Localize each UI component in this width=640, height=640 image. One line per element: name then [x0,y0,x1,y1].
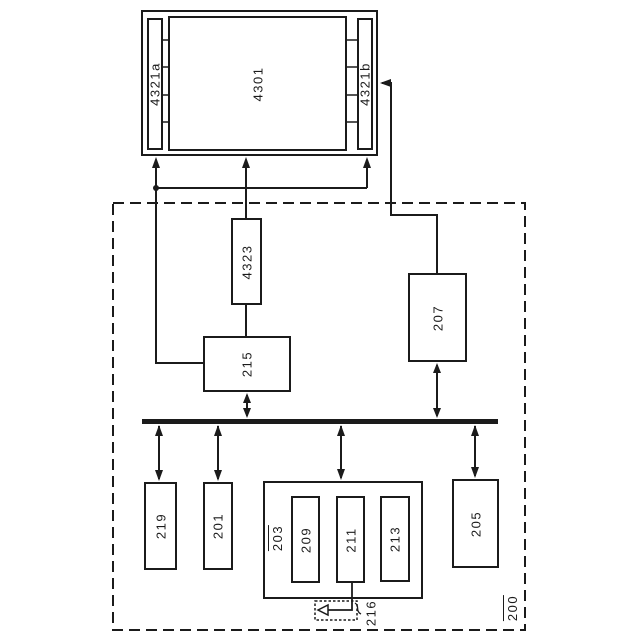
arrow-down-into-203 [337,469,345,480]
arrow-up-into-4301 [242,157,250,168]
label-209: 209 [299,526,312,552]
label-211: 211 [344,527,357,552]
label-4323: 4323 [240,244,253,279]
label-207: 207 [431,304,444,330]
block-215: 215 [203,336,291,392]
arrow-up-into-215 [243,393,251,403]
leader-squiggle [355,603,361,614]
label-201: 201 [212,513,225,539]
arrow-up-onto-bus-219 [155,425,163,436]
block-4321b-right-driver: 4321b [357,18,373,150]
label-203: 203 [268,525,284,551]
arrow-up-into-4321b [363,157,371,168]
block-4323: 4323 [231,218,262,305]
arrow-up-into-207 [433,363,441,373]
block-205: 205 [452,479,499,568]
arrow-up-into-4321a [152,157,160,168]
block-4301-display-panel: 4301 [168,16,347,151]
block-209: 209 [291,496,320,583]
arrow-down-into-201 [214,470,222,481]
block-207: 207 [408,273,467,362]
block-219: 219 [144,482,177,570]
label-205: 205 [469,510,482,536]
block-211: 211 [336,496,365,583]
label-200: 200 [503,595,519,621]
label-219: 219 [154,513,167,539]
arrow-up-onto-bus-203 [337,425,345,436]
wire-junction-dot [153,185,159,191]
block-4321a-left-driver: 4321a [147,18,163,150]
system-bus [142,419,498,424]
arrow-down-into-219 [155,470,163,481]
block-213: 213 [380,496,410,582]
figure-canvas: 4301 4321a 4321b 4323 215 207 219 201 20… [0,0,640,640]
arrow-up-onto-bus-205 [471,425,479,436]
label-4321b: 4321b [359,62,372,106]
label-215: 215 [241,351,254,377]
arrow-down-onto-bus-215 [243,408,251,418]
wire-207-to-display [382,83,437,273]
block-201: 201 [203,482,233,570]
label-216: 216 [365,600,378,626]
label-4301: 4301 [251,66,264,101]
arrow-down-onto-bus-207 [433,408,441,418]
label-213: 213 [389,526,402,552]
arrow-down-into-205 [471,467,479,478]
label-4321a: 4321a [149,62,162,106]
arrow-left-into-display [380,79,391,87]
arrow-up-onto-bus-201 [214,425,222,436]
